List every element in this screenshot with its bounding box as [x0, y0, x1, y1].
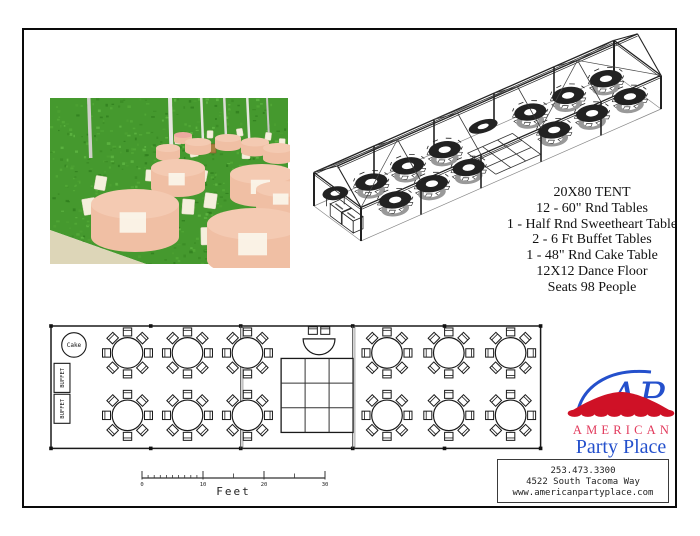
buffet-table: BUFFET: [54, 363, 70, 392]
tent-info-block: 20X80 TENT 12 - 60" Rnd Tables 1 - Half …: [484, 185, 700, 296]
round-table-group: [162, 390, 212, 440]
tent-stake: [49, 447, 53, 451]
chair: [486, 349, 494, 357]
layout-page: 20X80 TENT 12 - 60" Rnd Tables 1 - Half …: [0, 0, 700, 536]
chair-render: [207, 131, 213, 139]
round-table-group: [222, 328, 272, 378]
round-table: [495, 400, 526, 431]
round-table-group: [222, 390, 272, 440]
chair: [445, 370, 453, 378]
chair: [183, 328, 191, 336]
chair: [222, 411, 230, 419]
scale-bar: 0102030Feet: [135, 460, 345, 500]
chair: [204, 411, 212, 419]
round-table: [232, 338, 263, 369]
chair: [528, 411, 536, 419]
round-table: [112, 338, 143, 369]
chair-render: [182, 199, 195, 215]
chair: [362, 349, 370, 357]
round-table-render: [263, 143, 290, 164]
buffet-label: BUFFET: [60, 398, 66, 419]
chair: [103, 411, 111, 419]
chair: [383, 390, 391, 398]
sweetheart-chair: [308, 327, 317, 335]
round-table-group: [162, 328, 212, 378]
round-table: [172, 400, 203, 431]
chair: [445, 432, 453, 440]
round-table: [434, 400, 465, 431]
tent-stake: [443, 447, 447, 451]
chair: [204, 349, 212, 357]
chair: [243, 390, 251, 398]
floor-plan: CakeBUFFETBUFFET: [48, 322, 548, 454]
chair: [445, 390, 453, 398]
sweetheart-chair: [321, 327, 330, 335]
chair: [445, 328, 453, 336]
scale-unit-label: Feet: [216, 485, 251, 498]
round-table-render: [215, 134, 241, 151]
chair: [424, 349, 432, 357]
chair: [362, 411, 370, 419]
chair: [506, 390, 514, 398]
round-table-render: [156, 144, 180, 161]
round-table-group: [486, 328, 536, 378]
chair: [404, 349, 412, 357]
chair: [243, 432, 251, 440]
contact-box: 253.473.3300 4522 South Tacoma Way www.a…: [497, 459, 669, 503]
chair: [183, 432, 191, 440]
logo-party-place-text: Party Place: [576, 436, 667, 458]
chair: [123, 390, 131, 398]
tent-stake: [539, 447, 543, 451]
contact-phone: 253.473.3300: [498, 466, 668, 477]
chair: [383, 370, 391, 378]
buffet-table: BUFFET: [54, 394, 70, 423]
chair: [383, 328, 391, 336]
chair: [466, 411, 474, 419]
tent-stake: [539, 324, 543, 328]
chair: [145, 349, 153, 357]
scale-tick-label: 20: [261, 482, 268, 488]
chair: [486, 411, 494, 419]
chair: [123, 370, 131, 378]
dance-floor: [281, 358, 353, 432]
round-table-group: [486, 390, 536, 440]
tent-stake: [443, 324, 447, 328]
scale-tick-label: 0: [140, 482, 143, 488]
round-table: [372, 400, 403, 431]
round-table: [112, 400, 143, 431]
chair: [243, 370, 251, 378]
chair: [404, 411, 412, 419]
tent-stake: [149, 324, 153, 328]
tent-info-line: 20X80 TENT: [484, 185, 700, 201]
scale-tick-label: 10: [200, 482, 207, 488]
chair: [123, 328, 131, 336]
round-table-group: [424, 390, 474, 440]
chair: [103, 349, 111, 357]
chair: [183, 390, 191, 398]
chair: [183, 370, 191, 378]
round-table-render: [151, 159, 205, 197]
buffet-label: BUFFET: [60, 367, 66, 388]
chair: [243, 328, 251, 336]
round-table: [372, 338, 403, 369]
round-table-render: [91, 189, 179, 252]
chair-render: [94, 175, 107, 190]
scale-tick-label: 30: [322, 482, 329, 488]
3d-color-render: [50, 92, 290, 268]
chair: [506, 370, 514, 378]
chair: [145, 411, 153, 419]
round-table-group: [103, 328, 153, 378]
tent-info-line: 2 - 6 Ft Buffet Tables: [484, 232, 700, 248]
chair-render: [203, 192, 217, 209]
chair: [222, 349, 230, 357]
tent-info-line: 1 - 48" Rnd Cake Table: [484, 248, 700, 264]
chair: [383, 432, 391, 440]
round-table: [495, 338, 526, 369]
chair: [528, 349, 536, 357]
chair: [506, 328, 514, 336]
chair: [162, 349, 170, 357]
tent-info-line: 1 - Half Rnd Sweetheart Table: [484, 217, 700, 233]
chair: [162, 411, 170, 419]
round-table-group: [362, 390, 412, 440]
cake-label: Cake: [67, 342, 82, 349]
chair: [264, 411, 272, 419]
contact-address: 4522 South Tacoma Way: [498, 477, 668, 488]
round-table-group: [362, 328, 412, 378]
round-table-render: [185, 138, 211, 155]
tent-info-line: Seats 98 People: [484, 280, 700, 296]
chair: [466, 349, 474, 357]
round-table: [172, 338, 203, 369]
cake-table: Cake: [62, 333, 86, 357]
contact-website: www.americanpartyplace.com: [498, 488, 668, 499]
round-table: [232, 400, 263, 431]
round-table: [434, 338, 465, 369]
tent-stake: [149, 447, 153, 451]
sweetheart-3d: [470, 119, 496, 133]
round-table-render: [207, 208, 290, 268]
chair: [123, 432, 131, 440]
company-logo: AP AMERICAN Party Place: [565, 363, 678, 458]
tent-info-line: 12X12 Dance Floor: [484, 264, 700, 280]
logo-american-text: AMERICAN: [573, 423, 673, 437]
round-table-group: [103, 390, 153, 440]
chair: [424, 411, 432, 419]
round-table-group: [424, 328, 474, 378]
chair: [264, 349, 272, 357]
tent-info-line: 12 - 60" Rnd Tables: [484, 201, 700, 217]
tent-stake: [49, 324, 53, 328]
chair: [506, 432, 514, 440]
